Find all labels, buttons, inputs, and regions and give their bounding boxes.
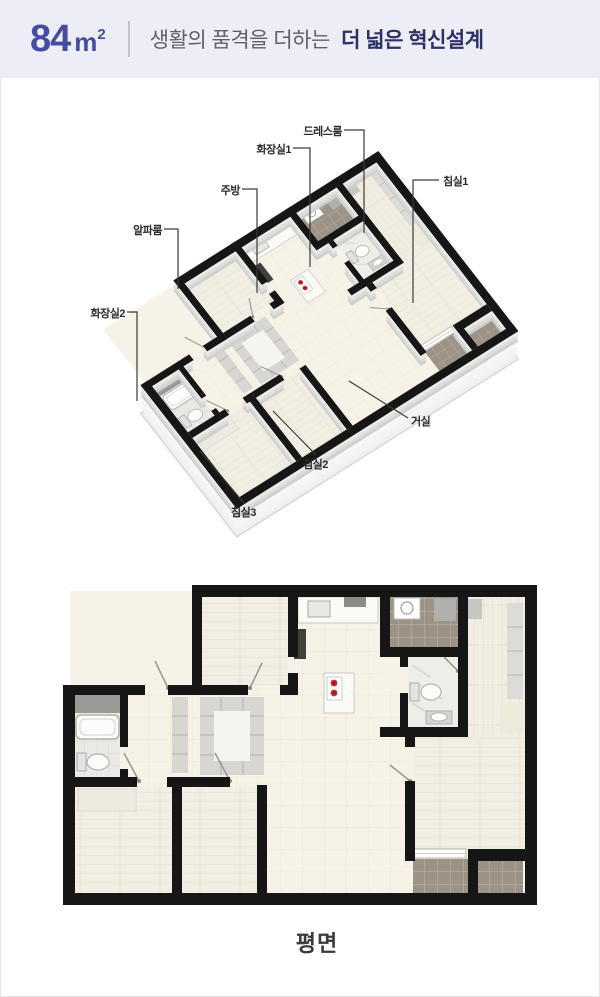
page: 84 m2 생활의 품격을 더하는 더 넓은 혁신설계 [0,0,600,997]
header-divider [128,21,130,57]
room-label-bedroom2: 침실2 [303,456,328,472]
area-unit: m2 [74,27,105,58]
plan-caption: 평면 [296,926,338,958]
tagline-bold: 더 넓은 혁신설계 [341,29,483,52]
iso-floorplan-figure: 드레스룸 화장실1 주방 침실1 알파룸 화장실2 거실 침실2 침실3 [0,85,600,560]
area-size: 84 m2 [30,18,106,61]
room-label-bathroom1: 화장실1 [257,141,291,157]
room-label-kitchen: 주방 [221,182,240,198]
room-label-living: 거실 [411,413,430,429]
header: 84 m2 생활의 품격을 더하는 더 넓은 혁신설계 [0,0,600,78]
iso-floorplan-svg [0,85,600,560]
room-label-alpharoom: 알파룸 [133,222,162,238]
room-label-bedroom1: 침실1 [443,173,468,189]
area-value: 84 [30,18,70,61]
room-label-bathroom2: 화장실2 [91,305,125,321]
area-exponent: 2 [97,26,105,43]
flat-floorplan-svg [0,578,600,914]
tagline-regular: 생활의 품격을 더하는 [150,29,330,52]
flat-floorplan-figure [0,578,600,914]
room-label-dressroom: 드레스룸 [304,123,342,139]
room-label-bedroom3: 침실3 [231,504,256,520]
header-tagline: 생활의 품격을 더하는 더 넓은 혁신설계 [150,24,484,54]
